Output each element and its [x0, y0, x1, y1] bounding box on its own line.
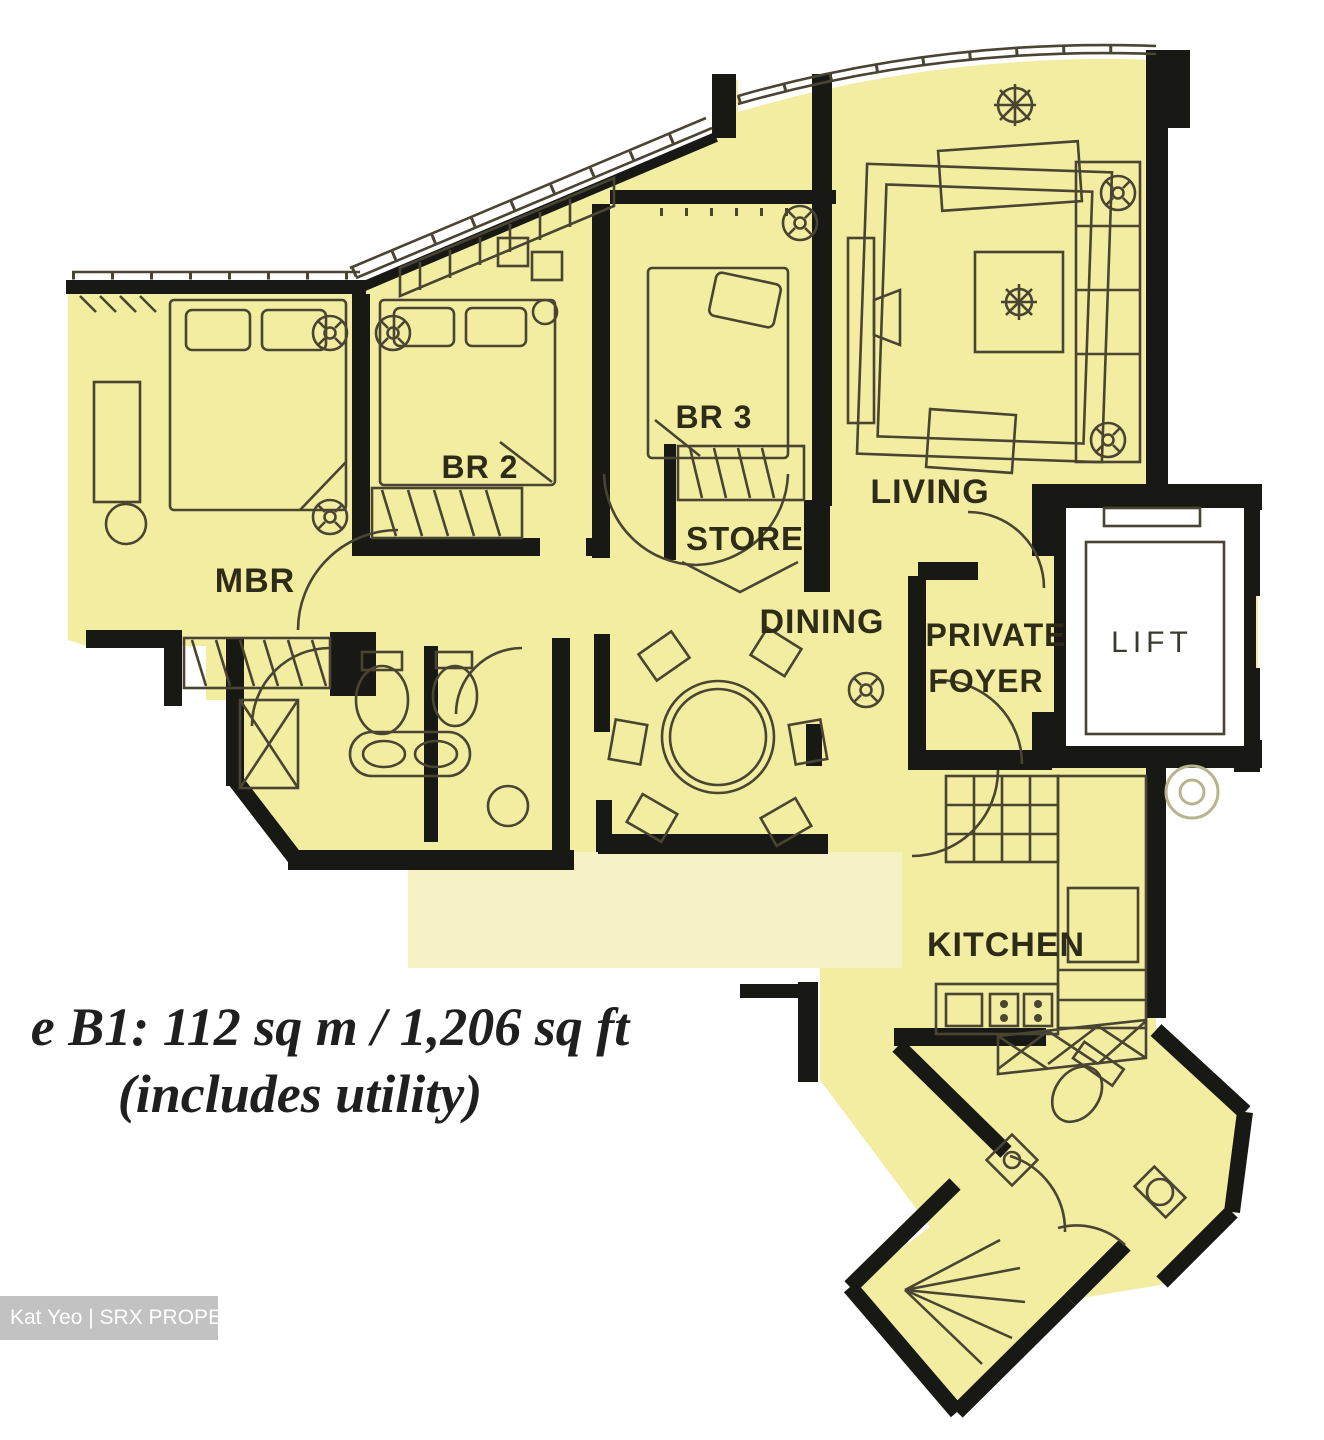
spiral-chute-icon: [1166, 766, 1218, 818]
room-label-private-foyer-line2: FOYER: [928, 663, 1043, 699]
watermark-label: Kat Yeo | SRX PROPERTY: [10, 1306, 264, 1329]
floorplan-canvas: MBR BR 2 BR 3 STORE LIVING DINING PRIVAT…: [0, 0, 1324, 1440]
watermark-badge: Kat Yeo | SRX PROPERTY: [0, 1296, 218, 1340]
room-label-kitchen: KITCHEN: [927, 926, 1085, 964]
room-label-br2: BR 2: [442, 449, 519, 485]
caption-line1: e B1: 112 sq m / 1,206 sq ft: [31, 997, 632, 1057]
room-label-dining: DINING: [760, 603, 885, 641]
room-label-lift: LIFT: [1111, 626, 1193, 659]
caption-line2: (includes utility): [118, 1064, 483, 1124]
floorplan-page: MBR BR 2 BR 3 STORE LIVING DINING PRIVAT…: [0, 0, 1324, 1440]
plant-icon: [994, 84, 1036, 126]
room-label-br3: BR 3: [676, 399, 753, 435]
room-label-mbr: MBR: [215, 562, 295, 600]
room-label-private-foyer-line1: PRIVATE: [926, 617, 1067, 653]
room-label-store: STORE: [686, 520, 804, 557]
room-label-living: LIVING: [870, 473, 989, 511]
flower-icon: [1001, 284, 1037, 320]
caption: e B1: 112 sq m / 1,206 sq ft (includes u…: [31, 997, 632, 1124]
